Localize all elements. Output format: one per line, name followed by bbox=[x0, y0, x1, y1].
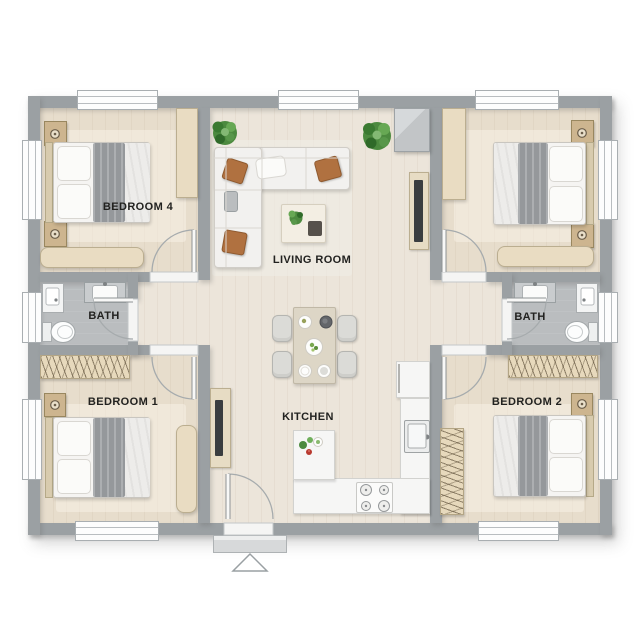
kitchen-sink bbox=[404, 420, 430, 453]
wardrobe-bedroom-tr bbox=[442, 108, 466, 200]
room-label-bath-right: BATH bbox=[514, 311, 545, 323]
dining-chair bbox=[337, 315, 357, 342]
dining-chair bbox=[337, 351, 357, 378]
dining-chair bbox=[272, 315, 292, 342]
blanket-bedroom1 bbox=[93, 418, 125, 497]
room-label-bedroom-1: BEDROOM 1 bbox=[88, 396, 158, 408]
pillow bbox=[549, 186, 583, 222]
wall-bedroom1-kitchen bbox=[198, 345, 210, 523]
wall-bathright-stub-bottom bbox=[502, 341, 512, 355]
window-left-bedroom1 bbox=[22, 399, 42, 480]
headboard-bedroom1 bbox=[45, 417, 53, 498]
wall-bathright-stub-top bbox=[502, 272, 512, 299]
nightstand-bedroom-tr-bottom bbox=[571, 222, 594, 248]
wardrobe-hangers-bedroom2 bbox=[440, 428, 464, 515]
window-right-bath bbox=[598, 292, 618, 343]
window-top-living bbox=[278, 90, 359, 110]
basin-bath-left bbox=[92, 285, 118, 300]
white-throw-pillow bbox=[255, 155, 288, 180]
pillow bbox=[57, 146, 91, 181]
window-bottom-bedroom1 bbox=[75, 521, 159, 541]
dining-table bbox=[293, 307, 336, 384]
headboard-bedroom4 bbox=[45, 142, 53, 223]
basin-bath-right bbox=[522, 285, 548, 300]
pillow bbox=[549, 457, 583, 492]
room-label-living-room: LIVING ROOM bbox=[273, 254, 351, 266]
room-label-bedroom-2: BEDROOM 2 bbox=[492, 396, 562, 408]
window-right-bedroom-tr bbox=[598, 140, 618, 220]
pillow bbox=[57, 459, 91, 494]
entrance-porch bbox=[213, 535, 287, 553]
wall-bathleft-stub-bottom bbox=[128, 341, 138, 355]
blanket-bedroom2 bbox=[518, 416, 548, 496]
floor-plan: BEDROOM 4 LIVING ROOM BATH BATH BEDROOM … bbox=[0, 0, 640, 640]
media-cabinet bbox=[394, 108, 430, 152]
closet-hangers-bedroom2 bbox=[508, 355, 598, 378]
nightstand-bedroom4-bottom bbox=[44, 221, 67, 247]
wall-bedroom4-living bbox=[198, 108, 210, 280]
accent-pillow bbox=[221, 229, 248, 256]
room-label-bedroom-4: BEDROOM 4 bbox=[103, 201, 173, 213]
tv-kitchen bbox=[215, 400, 223, 456]
headboard-bedroom-tr bbox=[586, 142, 594, 225]
pillow bbox=[57, 421, 91, 456]
window-left-bedroom4 bbox=[22, 140, 42, 220]
nightstand-bedroom2 bbox=[571, 393, 593, 416]
window-top-bedroom4 bbox=[77, 90, 158, 110]
bench-bedroom1 bbox=[176, 425, 197, 513]
duvet-bedroom-tr bbox=[494, 143, 518, 224]
fridge bbox=[396, 361, 430, 398]
pillow bbox=[549, 146, 583, 182]
gray-pillow bbox=[224, 191, 238, 212]
wall-bathleft-stub-top bbox=[128, 272, 138, 299]
nightstand-bedroom1 bbox=[44, 393, 66, 417]
window-right-bedroom2 bbox=[598, 399, 618, 480]
entrance-arrow-icon bbox=[233, 554, 267, 571]
closet-hangers-bedroom1 bbox=[40, 355, 130, 379]
window-bottom-bedroom2 bbox=[478, 521, 559, 541]
wall-living-bedroom-tr bbox=[430, 108, 442, 280]
duvet-bedroom2 bbox=[494, 416, 518, 496]
wardrobe-bedroom4 bbox=[176, 108, 198, 198]
toilet-tank-left bbox=[42, 322, 52, 342]
blanket-bedroom-tr bbox=[518, 143, 548, 224]
window-top-bedroom-tr bbox=[475, 90, 559, 110]
coffee-table-tray bbox=[308, 221, 322, 236]
room-label-bath-left: BATH bbox=[88, 310, 119, 322]
bench-bedroom4 bbox=[40, 247, 144, 268]
kitchen-counter-wing bbox=[293, 430, 335, 480]
room-label-kitchen: KITCHEN bbox=[282, 411, 334, 423]
shower-bath-left bbox=[42, 283, 64, 313]
duvet-bedroom1 bbox=[125, 418, 150, 497]
toilet-tank-right bbox=[588, 322, 598, 342]
pillow bbox=[57, 184, 91, 219]
stove bbox=[356, 482, 393, 513]
headboard-bedroom2 bbox=[586, 415, 594, 497]
pillow bbox=[549, 419, 583, 454]
bench-bedroom-tr bbox=[497, 246, 594, 267]
wall-outer-bottom-right bbox=[273, 523, 612, 535]
shower-bath-right bbox=[576, 283, 598, 313]
window-left-bath bbox=[22, 292, 42, 343]
tv-living bbox=[414, 180, 423, 242]
dining-chair bbox=[272, 351, 292, 378]
